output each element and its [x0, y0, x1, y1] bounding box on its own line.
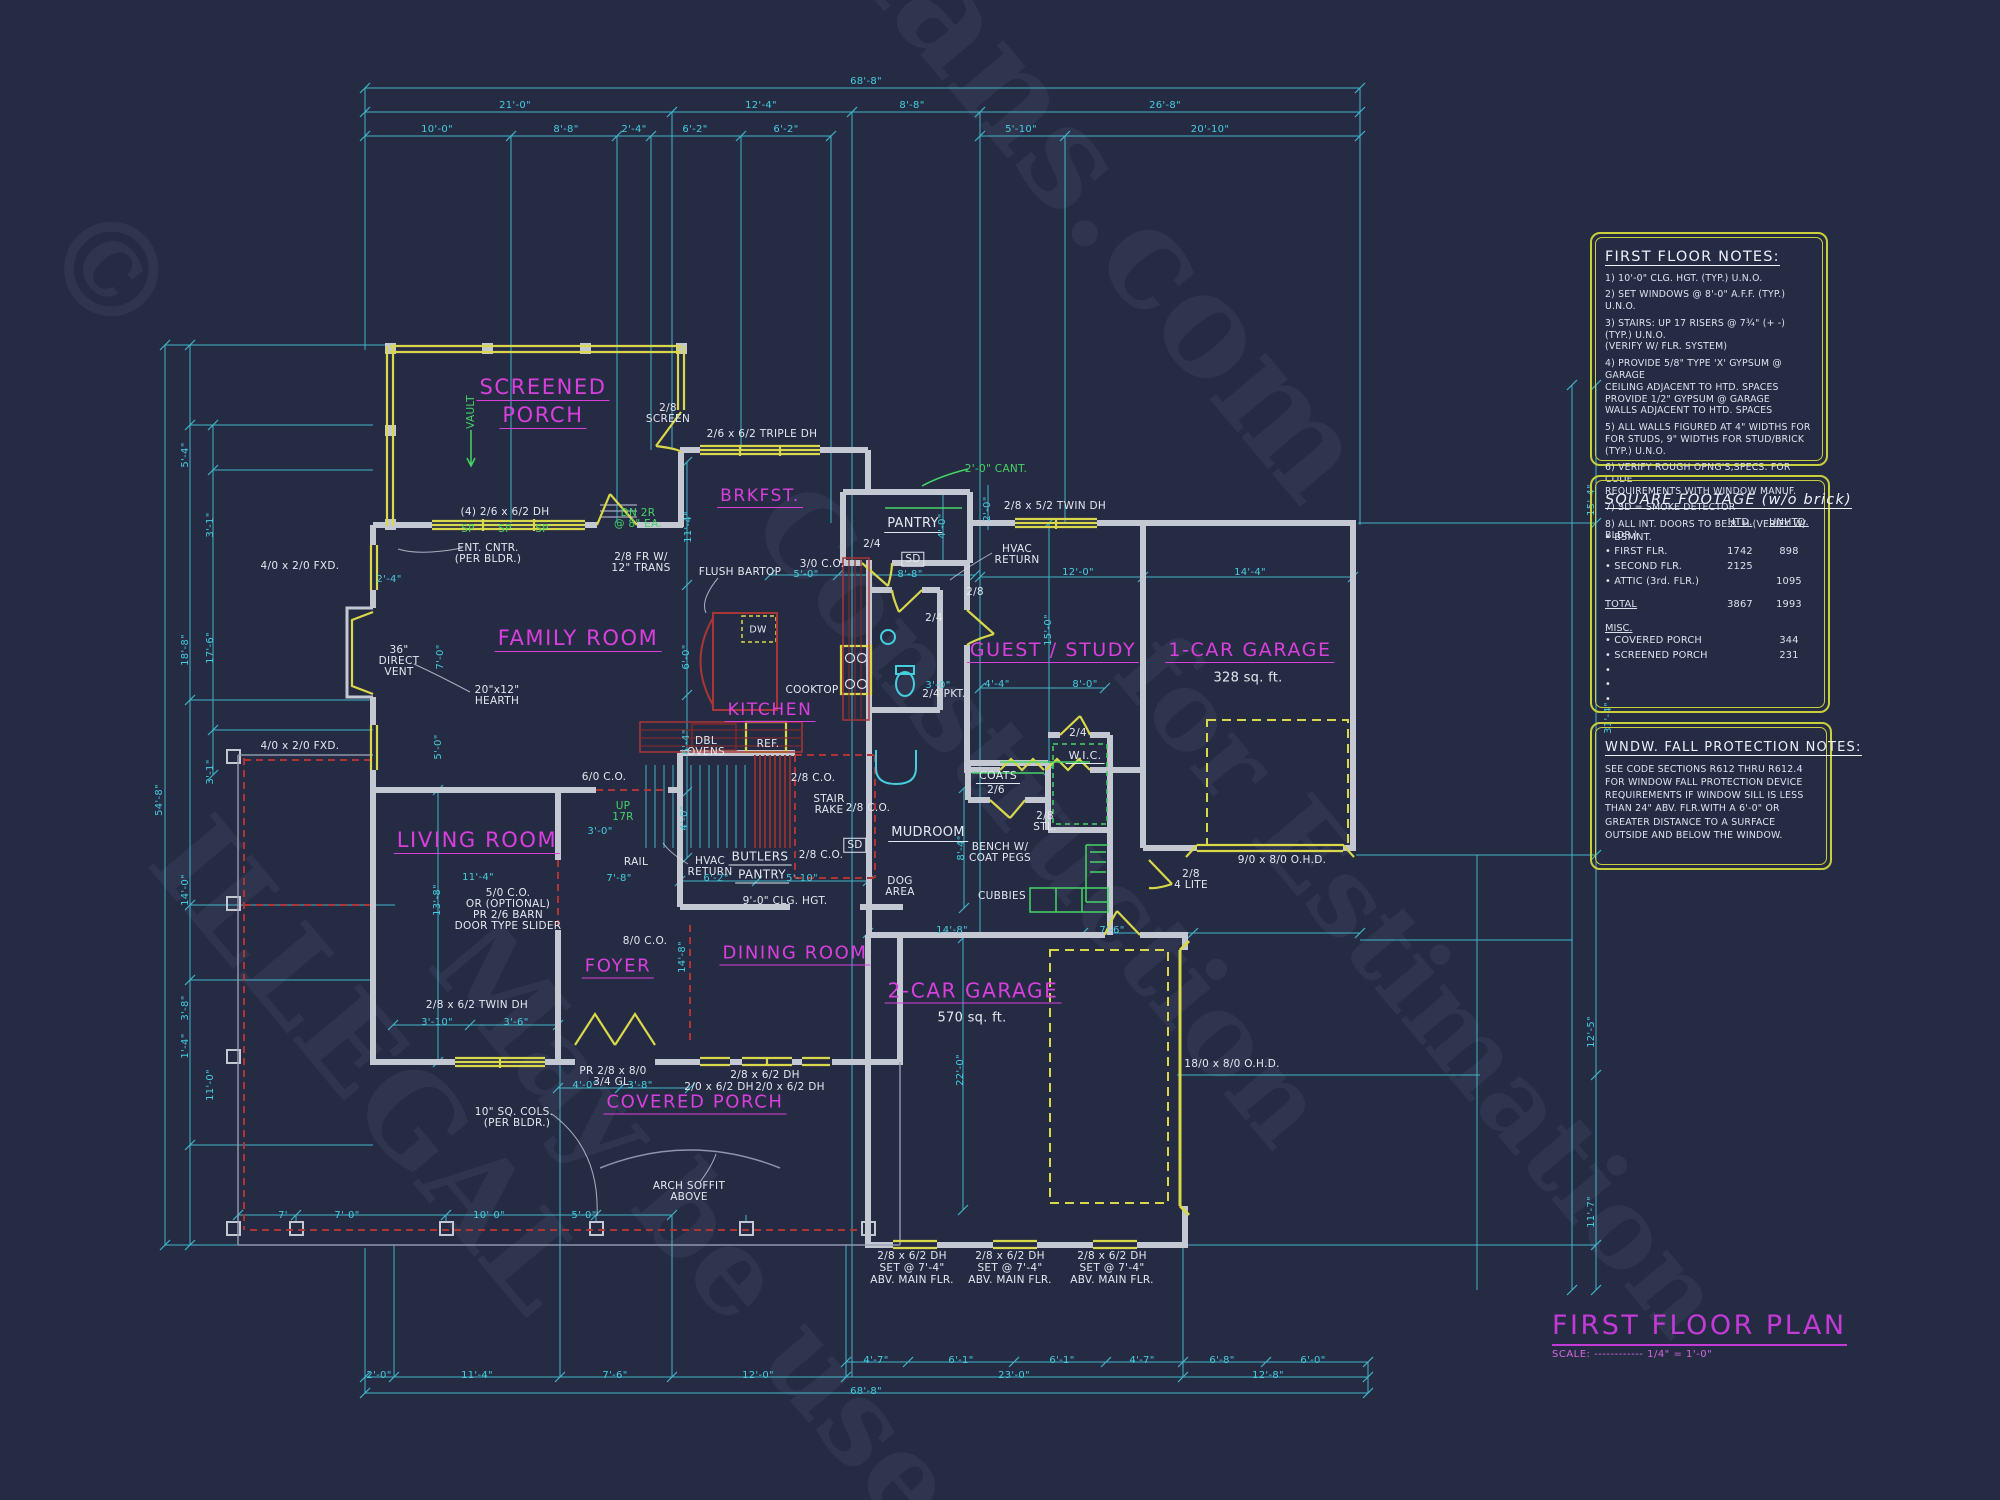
- fall-protection-box: WNDW. FALL PROTECTION NOTES: SEE CODE SE…: [1590, 722, 1832, 870]
- plan-label: COVERED PORCH: [603, 1094, 786, 1115]
- plan-label: 2/8 x 6/2 DH: [975, 1251, 1045, 1262]
- plan-label: 12'-0": [1062, 568, 1094, 578]
- plan-label: 6'-1": [948, 1356, 973, 1366]
- plan-label: 3'-0": [925, 681, 950, 691]
- plan-label: (4) 2/6 x 6/2 DH: [460, 507, 549, 518]
- plan-label: (PER BLDR.): [455, 554, 522, 565]
- plan-label: 22'-0": [956, 1054, 966, 1086]
- plan-label: 7'-6": [602, 1371, 627, 1381]
- plan-label: 2'-4": [621, 125, 646, 135]
- plan-label: RAKE: [815, 805, 844, 816]
- plan-label: KITCHEN: [725, 702, 816, 722]
- plan-label: 5'-0": [434, 734, 444, 759]
- plan-label: RETURN: [995, 555, 1040, 566]
- plan-label: DOOR TYPE SLIDER: [455, 921, 562, 932]
- sqft-row: • SCREENED PORCH231: [1605, 649, 1815, 664]
- title-block: FIRST FLOOR PLAN SCALE: ------------ 1/4…: [1552, 1310, 1847, 1360]
- sheet-title: FIRST FLOOR PLAN: [1552, 1310, 1847, 1346]
- plan-label: 11'-4": [461, 1371, 493, 1381]
- plan-label: ABOVE: [670, 1192, 708, 1203]
- plan-label: BUTLERS: [729, 851, 792, 866]
- plan-label: HVAC: [1002, 544, 1032, 555]
- plan-label: 3'-1": [206, 512, 216, 537]
- plan-label: 2/8 x 6/2 TWIN DH: [426, 1000, 528, 1011]
- plan-label: 5'-4": [181, 442, 191, 467]
- fall-title: WNDW. FALL PROTECTION NOTES:: [1605, 740, 1862, 756]
- plan-label: W.I.C.: [1066, 750, 1105, 764]
- note-line: 3) STAIRS: UP 17 RISERS @ 7¾" (+ -) (TYP…: [1605, 318, 1813, 354]
- sqft-total-unhtd: 1993: [1763, 598, 1815, 613]
- plan-label: 2/6: [987, 785, 1005, 796]
- plan-label: 2/4: [925, 613, 943, 624]
- first-floor-notes-inner: FIRST FLOOR NOTES: 1) 10'-0" CLG. HGT. (…: [1595, 237, 1823, 461]
- plan-label: 2/8 C.O.: [799, 850, 843, 861]
- plan-label: 2/4: [1069, 728, 1087, 739]
- plan-label: 4'-7": [1129, 1356, 1154, 1366]
- plan-label: 3'-0": [587, 827, 612, 837]
- sqft-total-htd: 3867: [1717, 598, 1763, 613]
- plan-label: 6'-4": [682, 729, 692, 754]
- plan-label: 2'-0": [366, 1371, 391, 1381]
- plan-label: 328 sq. ft.: [1213, 672, 1282, 685]
- plan-label: LIVING ROOM: [394, 830, 560, 854]
- plan-label: 12'-8": [1252, 1371, 1284, 1381]
- plan-label: 6'-2": [773, 125, 798, 135]
- note-line: 2) SET WINDOWS @ 8'-0" A.F.F. (TYP.) U.N…: [1605, 289, 1813, 313]
- sqft-row: • FIRST FLR.1742898: [1605, 545, 1815, 560]
- plan-label: 6'-8": [1209, 1356, 1234, 1366]
- plan-label: 21'-0": [499, 101, 531, 111]
- plan-label: ENT. CNTR.: [457, 543, 518, 554]
- plan-label: 2/0 x 6/2 DH: [684, 1082, 754, 1093]
- plan-label: 5'-0": [793, 570, 818, 580]
- plan-label: 9'-0" CLG. HGT.: [743, 896, 828, 907]
- plan-label: 5'-0": [571, 1211, 596, 1221]
- plan-label: 6/0 C.O.: [582, 772, 626, 783]
- sqft-row: •: [1605, 678, 1815, 693]
- plan-label: SP: [461, 524, 475, 535]
- plan-label: FOYER: [582, 958, 654, 979]
- plan-label: BENCH W/: [972, 842, 1029, 853]
- plan-label: 2/8: [659, 403, 677, 414]
- plan-label: SD: [901, 552, 924, 567]
- plan-label: 10" SQ. COLS.: [475, 1107, 553, 1118]
- sqft-misc-rows: • COVERED PORCH344• SCREENED PORCH231•••: [1605, 634, 1815, 707]
- plan-label: ABV. MAIN FLR.: [870, 1275, 953, 1286]
- sqft-rows: • BSMNT.• FIRST FLR.1742898• SECOND FLR.…: [1605, 531, 1815, 590]
- plan-label: SP: [535, 524, 549, 535]
- plan-label: 54'-8": [155, 784, 165, 816]
- plan-label: 2'-4": [376, 575, 401, 585]
- plan-label: 8'-8": [553, 125, 578, 135]
- plan-label: DN 2R: [621, 508, 656, 519]
- square-footage-inner: SQUARE FOOTAGE (w/o brick) HTD. UNHTD. •…: [1595, 480, 1825, 708]
- plan-label: 14'-8": [936, 926, 968, 936]
- plan-label: OR (OPTIONAL): [466, 899, 550, 910]
- plan-label: 20'-10": [1191, 125, 1230, 135]
- plan-label: 2/8 x 6/2 DH: [1077, 1251, 1147, 1262]
- plan-label: DOG: [887, 876, 912, 887]
- sqft-total-label: TOTAL: [1605, 598, 1717, 613]
- plan-label: 8'-4": [957, 835, 967, 860]
- plan-label: 14'-8": [678, 941, 688, 973]
- plan-label: ABV. MAIN FLR.: [968, 1275, 1051, 1286]
- plan-label: 13'-8": [433, 884, 443, 916]
- square-footage-box: SQUARE FOOTAGE (w/o brick) HTD. UNHTD. •…: [1590, 475, 1830, 713]
- plan-label: 36": [389, 645, 408, 656]
- plan-label: 3/0 C.O.: [800, 559, 844, 570]
- plan-label: 12'-5": [1587, 1016, 1597, 1048]
- plan-label: 3'-6": [503, 1018, 528, 1028]
- plan-label: COOKTOP: [785, 685, 838, 696]
- sqft-misc-title: MISC.: [1605, 623, 1815, 634]
- plan-label: 11'-4": [462, 873, 494, 883]
- plan-label: DBL: [695, 736, 717, 747]
- plan-label: REF.: [757, 739, 780, 750]
- plan-label: 2'-0" CANT.: [965, 464, 1027, 475]
- plan-label: 8'-0": [1072, 680, 1097, 690]
- plan-label: SD: [843, 838, 866, 853]
- plan-label: 18/0 x 8/0 O.H.D.: [1184, 1059, 1279, 1070]
- plan-label: SET @ 7'-4": [977, 1263, 1042, 1274]
- plan-label: PANTRY: [735, 869, 789, 884]
- fall-body: SEE CODE SECTIONS R612 THRU R612.4 FOR W…: [1605, 763, 1817, 842]
- plan-label: 11'-0": [206, 1069, 216, 1101]
- plan-label: 7': [278, 1211, 288, 1221]
- plan-label: CUBBIES: [978, 891, 1026, 902]
- plan-label: 5'-10": [1005, 125, 1037, 135]
- plan-label: FLUSH BARTOP: [699, 567, 781, 578]
- plan-label: 15'-0": [1044, 614, 1054, 646]
- plan-label: 17'-6": [206, 632, 216, 664]
- plan-label: VAULT: [466, 395, 477, 429]
- sqft-total-row: TOTAL 3867 1993: [1605, 598, 1815, 613]
- plan-label: ARCH SOFFIT: [653, 1181, 725, 1192]
- plan-label: 2/8: [966, 587, 984, 598]
- plan-label: 20"x12": [475, 685, 520, 696]
- plan-label: 17R: [612, 812, 634, 823]
- plan-label: 2/8 x 5/2 TWIN DH: [1004, 501, 1106, 512]
- sqft-header: HTD. UNHTD.: [1605, 516, 1815, 531]
- plan-label: DW: [749, 625, 766, 635]
- note-line: 4) PROVIDE 5/8" TYPE 'X' GYPSUM @ GARAGE…: [1605, 358, 1813, 417]
- plan-label: 26'-8": [1149, 101, 1181, 111]
- plan-label: OVENS: [687, 747, 725, 758]
- plan-label: 8'-8": [899, 101, 924, 111]
- sqft-title: SQUARE FOOTAGE (w/o brick): [1605, 492, 1852, 509]
- plan-label: 6'-2": [703, 874, 728, 884]
- plan-label: RAIL: [624, 857, 648, 868]
- plan-label: ABV. MAIN FLR.: [1070, 1275, 1153, 1286]
- plan-label: 4/0 x 2/0 FXD.: [261, 741, 340, 752]
- plan-label: STAIR: [813, 794, 844, 805]
- plan-label: 14'-0": [181, 874, 191, 906]
- plan-label: 2/8 C.O.: [791, 773, 835, 784]
- plan-label: 1'-4": [181, 1033, 191, 1058]
- sqft-col-htd: HTD.: [1717, 516, 1763, 531]
- plan-label: 11'-4": [684, 511, 694, 543]
- plan-label: 3'-10": [421, 1018, 453, 1028]
- plan-label: 2/8: [1182, 869, 1200, 880]
- plan-label: BRKFST.: [717, 488, 803, 508]
- plan-label: (PER BLDR.): [484, 1118, 551, 1129]
- plan-label: PR 2/6 BARN: [473, 910, 543, 921]
- plan-label: 9/0 x 8/0 O.H.D.: [1238, 855, 1326, 866]
- plan-label: 68'-8": [850, 77, 882, 87]
- plan-label: 2-CAR GARAGE: [885, 981, 1062, 1004]
- plan-label: COATS: [976, 770, 1020, 784]
- plan-label: 2/8 FR W/: [614, 552, 668, 563]
- sqft-row: • SECOND FLR.2125: [1605, 560, 1815, 575]
- plan-label: 5'-10": [786, 874, 818, 884]
- sqft-row: •: [1605, 693, 1815, 708]
- plan-label: PORCH: [499, 405, 586, 429]
- notes-title: FIRST FLOOR NOTES:: [1605, 249, 1780, 266]
- plan-label: SP: [498, 524, 512, 535]
- plan-label: SET @ 7'-4": [1079, 1263, 1144, 1274]
- plan-label: 11'-7": [1587, 1196, 1597, 1228]
- plan-label: 2'-0": [983, 496, 993, 521]
- plan-label: 14'-4": [1234, 568, 1266, 578]
- plan-label: 3'-1": [206, 759, 216, 784]
- plan-label: AREA: [885, 887, 915, 898]
- plan-label: HVAC: [695, 856, 725, 867]
- plan-label: 7'-6": [1099, 926, 1124, 936]
- plan-label: 4'-0": [572, 1081, 597, 1091]
- note-line: 5) ALL WALLS FIGURED AT 4" WIDTHS FOR FO…: [1605, 422, 1813, 458]
- sqft-row: • BSMNT.: [1605, 531, 1815, 546]
- plan-label: 4/0 x 2/0 FXD.: [261, 561, 340, 572]
- plan-label: 6'-0": [1300, 1356, 1325, 1366]
- plan-label: 10'-0": [473, 1211, 505, 1221]
- fall-protection-inner: WNDW. FALL PROTECTION NOTES: SEE CODE SE…: [1595, 727, 1827, 865]
- plan-label: 2/8 x 6/2 DH: [730, 1070, 800, 1081]
- plan-label: 18'-8": [181, 634, 191, 666]
- plan-label: DIRECT: [379, 656, 420, 667]
- plan-label: 12" TRANS: [611, 563, 670, 574]
- plan-label: COAT PEGS: [969, 853, 1031, 864]
- plan-label: 4'-4": [984, 680, 1009, 690]
- plan-label: 570 sq. ft.: [937, 1012, 1006, 1025]
- sqft-row: • ATTIC (3rd. FLR.)1095: [1605, 575, 1815, 590]
- plan-label: 2/8: [1036, 811, 1054, 822]
- plan-label: VENT: [384, 667, 413, 678]
- note-line: 1) 10'-0" CLG. HGT. (TYP.) U.N.O.: [1605, 273, 1813, 285]
- sheet-scale: SCALE: ------------ 1/4" = 1'-0": [1552, 1349, 1847, 1360]
- plan-label: 4 LITE: [1174, 880, 1208, 891]
- plan-label: 3'-8": [627, 1081, 652, 1091]
- plan-label: PR 2/8 x 8/0: [579, 1066, 646, 1077]
- plan-label: 6'-2": [682, 125, 707, 135]
- plan-label: 8/0 C.O.: [623, 936, 667, 947]
- plan-label: 6'-1": [1049, 1356, 1074, 1366]
- plan-label: 4'-0": [680, 805, 690, 830]
- plan-label: 2/8 x 6/2 DH: [877, 1251, 947, 1262]
- sqft-col-unhtd: UNHTD.: [1763, 516, 1815, 531]
- plan-label: 12'-0": [742, 1371, 774, 1381]
- plan-label: DINING ROOM: [719, 945, 870, 966]
- sqft-row: •: [1605, 664, 1815, 679]
- floorplan-sheet: ©Plans.comConstructionILLEGALMay be used…: [0, 0, 2000, 1500]
- plan-label: 2/0 x 6/2 DH: [755, 1082, 825, 1093]
- plan-label: 2/6 x 6/2 TRIPLE DH: [707, 429, 818, 440]
- plan-label: 68'-8": [850, 1387, 882, 1397]
- sqft-row: • COVERED PORCH344: [1605, 634, 1815, 649]
- plan-label: 2/8 C.O.: [846, 803, 890, 814]
- plan-label: 7'-0": [436, 644, 446, 669]
- plan-label: 3'-8": [181, 995, 191, 1020]
- plan-label: 10'-0": [421, 125, 453, 135]
- plan-label: 12'-4": [745, 101, 777, 111]
- plan-label: UP: [616, 801, 631, 812]
- plan-label: SCREENED: [476, 377, 609, 401]
- plan-label: PANTRY: [884, 517, 942, 533]
- plan-label: 8'-8": [897, 570, 922, 580]
- plan-label: STL.: [1033, 822, 1056, 833]
- first-floor-notes-box: FIRST FLOOR NOTES: 1) 10'-0" CLG. HGT. (…: [1590, 232, 1828, 466]
- plan-label: 7'-8": [606, 874, 631, 884]
- plan-label: 7'-0": [334, 1211, 359, 1221]
- plan-label: 4'-7": [863, 1356, 888, 1366]
- plan-label: @ 8" EA.: [614, 519, 662, 530]
- plan-label: FAMILY ROOM: [495, 628, 662, 652]
- plan-label: SCREEN: [646, 414, 690, 425]
- plan-label: 4'-0": [938, 513, 948, 538]
- plan-label: 6'-0": [682, 644, 692, 669]
- plan-label: 23'-0": [998, 1371, 1030, 1381]
- plan-label: HEARTH: [475, 696, 519, 707]
- plan-label: 1-CAR GARAGE: [1165, 641, 1334, 663]
- plan-label: SET @ 7'-4": [879, 1263, 944, 1274]
- plan-label: 5/0 C.O.: [486, 888, 530, 899]
- plan-label: 2/4: [863, 539, 881, 550]
